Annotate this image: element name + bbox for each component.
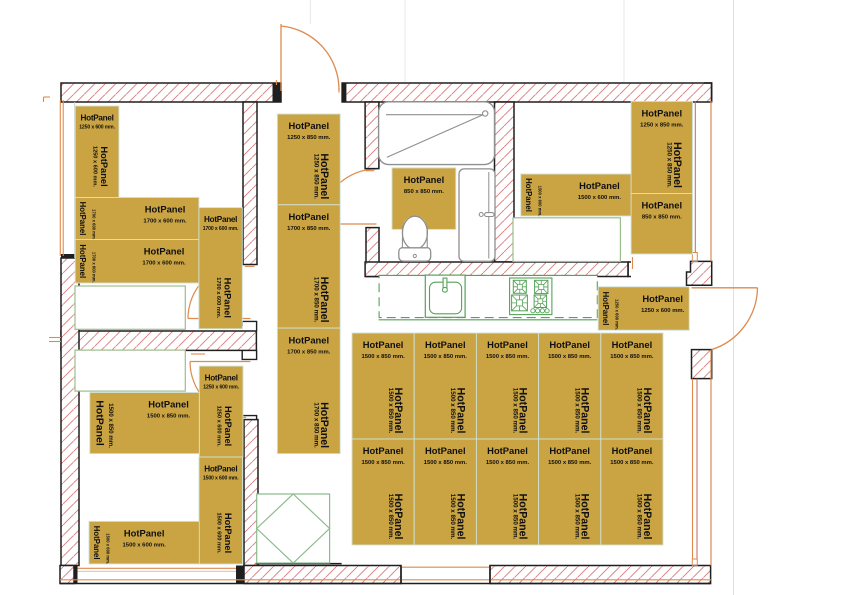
svg-text:1500 x 850 mm.: 1500 x 850 mm. [511, 494, 518, 540]
svg-text:1700 x 600 mm.: 1700 x 600 mm. [92, 252, 97, 283]
svg-text:HotPanel: HotPanel [425, 339, 466, 350]
svg-text:1700 x 850 mm.: 1700 x 850 mm. [313, 277, 320, 323]
svg-text:1700 x 850 mm.: 1700 x 850 mm. [287, 226, 331, 232]
svg-text:1500 x 850 mm.: 1500 x 850 mm. [387, 388, 394, 434]
svg-text:1500 x 850 mm.: 1500 x 850 mm. [636, 494, 643, 540]
svg-text:1500 x 600 mm.: 1500 x 600 mm. [578, 195, 622, 201]
svg-text:HotPanel: HotPanel [288, 211, 329, 222]
svg-text:1500 x 850 mm.: 1500 x 850 mm. [361, 354, 405, 360]
svg-text:1700 x 600 mm.: 1700 x 600 mm. [143, 219, 187, 225]
svg-text:HotPanel: HotPanel [579, 180, 620, 191]
svg-text:1250 x 600 mm.: 1250 x 600 mm. [203, 385, 239, 391]
svg-text:HotPanel: HotPanel [524, 178, 533, 212]
svg-text:1500 x 850 mm.: 1500 x 850 mm. [424, 354, 468, 360]
svg-text:HotPanel: HotPanel [549, 339, 590, 350]
svg-text:HotPanel: HotPanel [93, 400, 105, 446]
svg-text:HotPanel: HotPanel [78, 202, 87, 236]
svg-text:HotPanel: HotPanel [641, 200, 682, 211]
svg-text:1250 x 850 mm.: 1250 x 850 mm. [313, 154, 320, 200]
svg-text:1500 x 850 mm.: 1500 x 850 mm. [574, 494, 581, 540]
svg-text:1700 x 850 mm.: 1700 x 850 mm. [313, 402, 320, 448]
svg-text:HotPanel: HotPanel [99, 146, 109, 186]
svg-text:HotPanel: HotPanel [642, 293, 683, 304]
svg-text:HotPanel: HotPanel [204, 465, 237, 474]
svg-text:HotPanel: HotPanel [223, 278, 233, 318]
svg-text:HotPanel: HotPanel [78, 244, 87, 278]
svg-text:1500 x 850 mm.: 1500 x 850 mm. [107, 403, 114, 448]
svg-text:1700 x 600 mm.: 1700 x 600 mm. [92, 209, 97, 240]
svg-text:1500 x 850 mm.: 1500 x 850 mm. [486, 354, 530, 360]
svg-text:1250 x 850 mm.: 1250 x 850 mm. [640, 123, 684, 129]
svg-text:1500 x 850 mm.: 1500 x 850 mm. [449, 494, 456, 540]
svg-text:1500 x 850 mm.: 1500 x 850 mm. [610, 460, 654, 466]
svg-text:HotPanel: HotPanel [288, 334, 329, 345]
svg-text:1250 x 600 mm.: 1250 x 600 mm. [92, 146, 98, 187]
svg-text:1250 x 850 mm.: 1250 x 850 mm. [287, 135, 331, 141]
svg-text:HotPanel: HotPanel [363, 339, 404, 350]
svg-text:1500 x 600 mm.: 1500 x 600 mm. [203, 476, 239, 482]
svg-text:1500 x 850 mm.: 1500 x 850 mm. [486, 460, 530, 466]
svg-text:HotPanel: HotPanel [641, 108, 682, 119]
svg-text:1700 x 850 mm.: 1700 x 850 mm. [287, 349, 331, 355]
svg-text:HotPanel: HotPanel [148, 399, 189, 410]
svg-text:HotPanel: HotPanel [81, 114, 114, 123]
svg-text:1500 x 850 mm.: 1500 x 850 mm. [548, 460, 592, 466]
svg-text:1500 x 850 mm.: 1500 x 850 mm. [548, 354, 592, 360]
svg-text:1500 x 850 mm.: 1500 x 850 mm. [147, 414, 191, 420]
svg-text:HotPanel: HotPanel [612, 445, 653, 456]
svg-text:HotPanel: HotPanel [124, 528, 165, 539]
svg-text:1250 x 600 mm.: 1250 x 600 mm. [641, 308, 685, 314]
svg-text:850 x 850 mm.: 850 x 850 mm. [404, 189, 444, 195]
svg-text:1250 x 600 mm.: 1250 x 600 mm. [216, 406, 222, 447]
svg-text:1500 x 600 mm.: 1500 x 600 mm. [106, 533, 111, 564]
svg-text:1700 x 600 mm.: 1700 x 600 mm. [215, 277, 221, 318]
svg-text:HotPanel: HotPanel [601, 292, 610, 326]
svg-text:1500 x 850 mm.: 1500 x 850 mm. [610, 354, 654, 360]
svg-text:1250 x 600 mm.: 1250 x 600 mm. [79, 125, 115, 131]
svg-text:1250 x 600 mm.: 1250 x 600 mm. [615, 299, 620, 330]
svg-text:1700 x 600 mm.: 1700 x 600 mm. [203, 226, 239, 232]
svg-text:HotPanel: HotPanel [404, 174, 445, 185]
svg-text:1700 x 600 mm.: 1700 x 600 mm. [142, 261, 186, 267]
svg-text:HotPanel: HotPanel [363, 445, 404, 456]
svg-text:HotPanel: HotPanel [223, 513, 233, 553]
svg-text:HotPanel: HotPanel [425, 445, 466, 456]
svg-text:HotPanel: HotPanel [204, 215, 237, 224]
svg-text:HotPanel: HotPanel [487, 445, 528, 456]
svg-text:1500 x 850 mm.: 1500 x 850 mm. [574, 388, 581, 434]
svg-text:1500 x 850 mm.: 1500 x 850 mm. [424, 460, 468, 466]
svg-text:1500 x 850 mm.: 1500 x 850 mm. [361, 460, 405, 466]
svg-text:1250 x 850 mm.: 1250 x 850 mm. [666, 142, 673, 188]
svg-text:HotPanel: HotPanel [487, 339, 528, 350]
svg-text:HotPanel: HotPanel [612, 339, 653, 350]
svg-text:1500 x 850 mm.: 1500 x 850 mm. [387, 494, 394, 540]
svg-text:HotPanel: HotPanel [145, 204, 186, 215]
svg-text:1500 x 600 mm.: 1500 x 600 mm. [123, 543, 167, 549]
svg-text:HotPanel: HotPanel [549, 445, 590, 456]
svg-text:850 x 850 mm.: 850 x 850 mm. [642, 215, 682, 221]
svg-text:1500 x 850 mm.: 1500 x 850 mm. [636, 388, 643, 434]
svg-text:HotPanel: HotPanel [288, 120, 329, 131]
svg-text:1500 x 600 mm.: 1500 x 600 mm. [215, 512, 221, 553]
svg-text:HotPanel: HotPanel [144, 246, 185, 257]
svg-text:1500 x 850 mm.: 1500 x 850 mm. [449, 388, 456, 434]
svg-text:HotPanel: HotPanel [205, 374, 238, 383]
svg-text:1500 x 600 mm.: 1500 x 600 mm. [537, 186, 542, 217]
svg-text:HotPanel: HotPanel [223, 406, 233, 446]
svg-text:1500 x 850 mm.: 1500 x 850 mm. [511, 388, 518, 434]
svg-text:HotPanel: HotPanel [92, 526, 101, 560]
